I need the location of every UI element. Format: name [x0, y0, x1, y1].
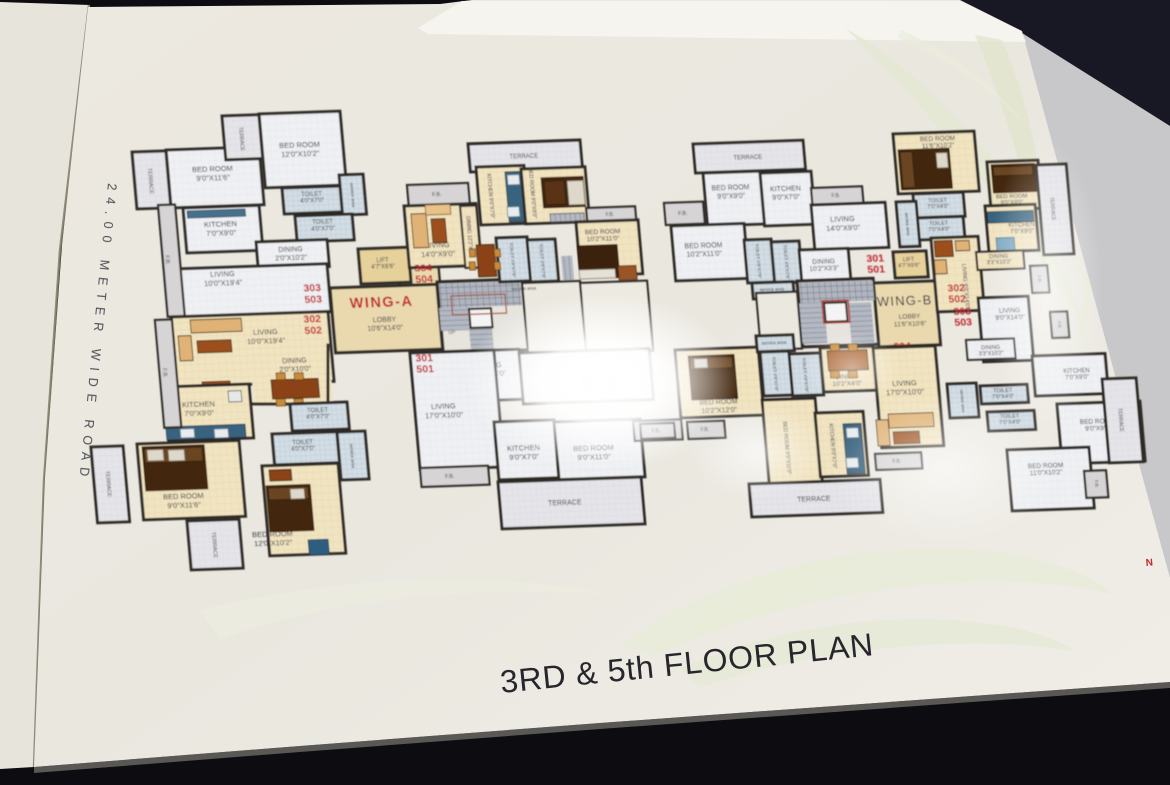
svg-text:TERRACE: TERRACE	[797, 495, 831, 503]
svg-text:303503: 303503	[303, 282, 323, 306]
svg-text:TOILET7'0"X4'0": TOILET7'0"X4'0"	[927, 221, 950, 234]
svg-text:BED ROOM9'0"X11'6": BED ROOM9'0"X11'6"	[192, 164, 234, 183]
svg-text:TOILET7'0"X4'0": TOILET7'0"X4'0"	[926, 198, 949, 211]
svg-text:TOILET4'0"X7'0": TOILET4'0"X7'0"	[290, 439, 315, 452]
svg-text:F.B.: F.B.	[445, 474, 455, 480]
svg-text:F.B.: F.B.	[164, 255, 171, 265]
svg-text:F.B.: F.B.	[678, 211, 688, 217]
svg-text:F.B.: F.B.	[1094, 480, 1100, 488]
svg-text:F.B.: F.B.	[831, 193, 840, 199]
svg-text:301501: 301501	[866, 252, 886, 276]
svg-text:KITCHEN7'0"X9'0": KITCHEN7'0"X9'0"	[204, 219, 238, 238]
svg-text:301501: 301501	[415, 352, 435, 376]
svg-text:KITCHEN7'0"X9'0": KITCHEN7'0"X9'0"	[182, 399, 216, 418]
svg-text:302502: 302502	[947, 282, 967, 306]
svg-text:BED ROOM12'0"X10'2": BED ROOM12'0"X10'2"	[279, 140, 321, 159]
svg-text:F.B.: F.B.	[161, 368, 168, 378]
svg-text:BED ROOM11'6"X10'2": BED ROOM11'6"X10'2"	[920, 135, 957, 150]
svg-text:TERRACE: TERRACE	[509, 154, 538, 161]
svg-text:F.B.: F.B.	[605, 212, 614, 218]
svg-text:TOILET4'0"X7'0": TOILET4'0"X7'0"	[299, 191, 324, 204]
svg-text:302502: 302502	[303, 313, 323, 337]
svg-text:TERRACE: TERRACE	[548, 499, 582, 507]
svg-text:TOILET4'0"X7'0": TOILET4'0"X7'0"	[305, 407, 330, 420]
svg-text:UP: UP	[448, 330, 456, 336]
svg-text:BED ROOM10'2"X11'0": BED ROOM10'2"X11'0"	[585, 228, 622, 243]
svg-text:N: N	[1145, 557, 1153, 569]
svg-text:service area: service area	[511, 286, 536, 292]
svg-text:303503: 303503	[953, 305, 973, 329]
svg-text:TERRACE: TERRACE	[733, 155, 762, 162]
svg-text:service area: service area	[761, 340, 786, 346]
svg-text:304504: 304504	[414, 262, 434, 286]
svg-text:TOILET4'0"X7'0": TOILET4'0"X7'0"	[310, 219, 335, 232]
svg-text:WING-B: WING-B	[876, 292, 933, 309]
svg-text:WING-A: WING-A	[349, 294, 414, 312]
svg-text:BED ROOM9'0"X11'6": BED ROOM9'0"X11'6"	[163, 491, 205, 510]
svg-text:F.B.: F.B.	[432, 192, 442, 198]
